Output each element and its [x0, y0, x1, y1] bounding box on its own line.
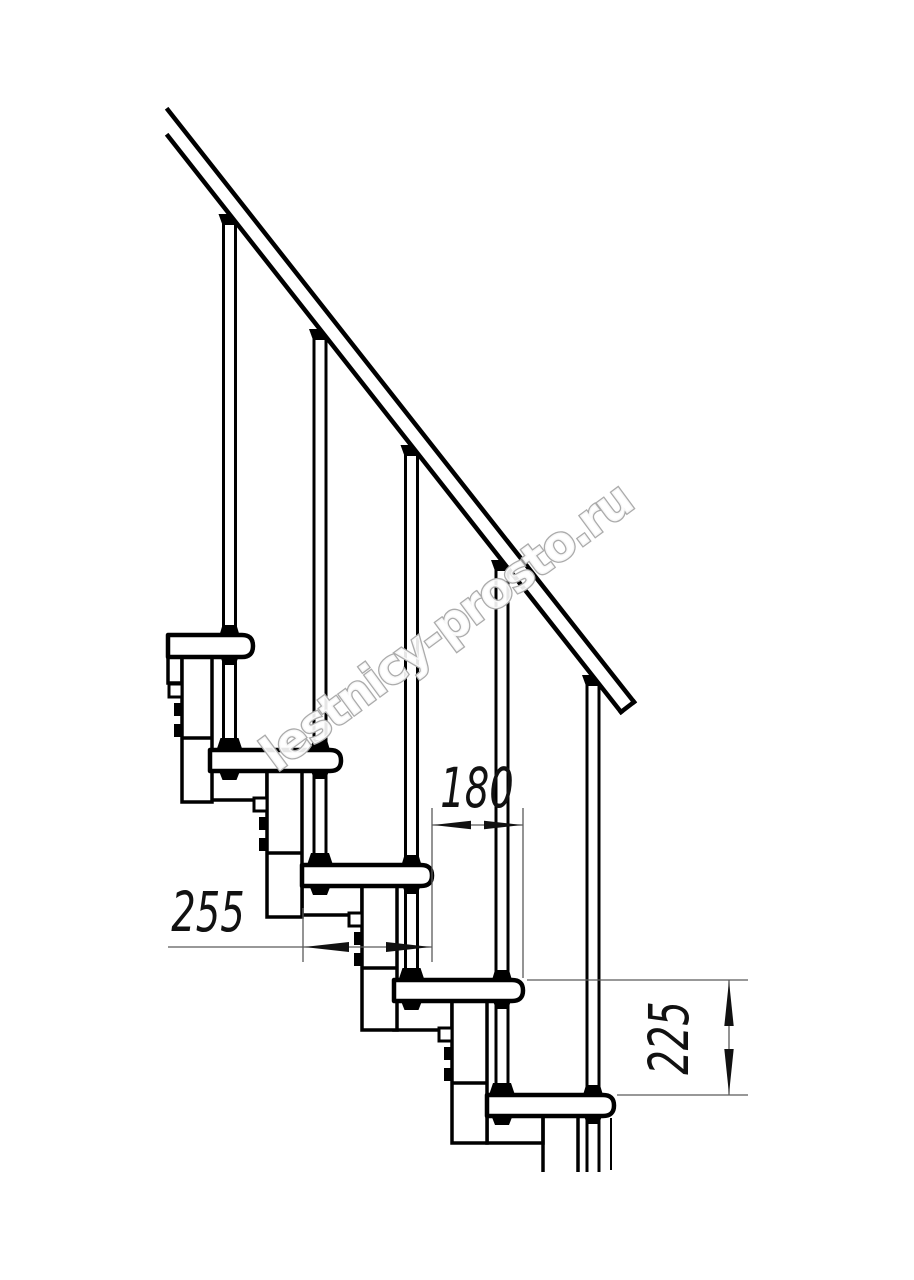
tread: [168, 635, 253, 657]
connector-bolt: [444, 1068, 452, 1081]
staircase-technical-drawing: 180 255 225 lestnicy-prosto.ru: [0, 0, 914, 1280]
bracket: [210, 771, 267, 800]
connector-bolt: [174, 724, 182, 737]
connector-bolt: [354, 953, 362, 966]
stringer-module: [267, 771, 302, 917]
connector-tab-open: [169, 684, 182, 697]
rod-nut: [401, 1001, 422, 1010]
connector-bolt: [259, 817, 267, 830]
tread: [394, 980, 523, 1001]
bracket: [168, 657, 182, 683]
dim-text-riser-height: 225: [638, 1001, 702, 1074]
connector-bolt: [174, 703, 182, 716]
rod-nut: [492, 1116, 513, 1125]
connector-bolt: [354, 932, 362, 945]
tread: [487, 1095, 614, 1116]
dim-arrow-icon: [724, 981, 733, 1026]
handrail-top-edge: [168, 110, 634, 702]
tread-collar: [402, 855, 422, 865]
dim-arrow-icon: [433, 821, 471, 830]
tread-collar: [583, 1085, 603, 1095]
under-tread-collar: [403, 886, 421, 894]
dim-arrow-icon: [386, 942, 431, 952]
connector-tab-open: [439, 1028, 452, 1041]
connector-tab-open: [254, 798, 267, 811]
dim-arrow-icon: [484, 821, 522, 830]
dim-text-step-run: 180: [440, 757, 513, 821]
under-tread-collar: [311, 771, 329, 779]
rod-foot-mount: [217, 738, 243, 750]
under-tread-collar: [221, 657, 239, 665]
rod-foot-mount: [307, 853, 333, 865]
rod-foot-mount: [489, 1083, 515, 1095]
rod-nut: [219, 771, 240, 780]
watermark-text: lestnicy-prosto.ru: [250, 472, 642, 783]
stringer-module: [452, 1001, 487, 1143]
connector-bolt: [444, 1047, 452, 1060]
tread: [302, 865, 432, 886]
handrail: [168, 110, 634, 712]
tread-collar: [220, 625, 240, 635]
rod-nut: [310, 886, 331, 895]
under-tread-collar: [584, 1116, 602, 1124]
dim-text-tread-depth: 255: [171, 881, 244, 945]
rod-foot-mount: [399, 968, 425, 980]
stringer-module: [362, 886, 397, 1030]
dim-arrow-icon: [304, 942, 349, 952]
dim-arrow-icon: [724, 1049, 733, 1094]
stringer-module: [182, 657, 212, 802]
bracket: [302, 886, 362, 915]
connector-tab-open: [349, 913, 362, 926]
connector-bolt: [259, 838, 267, 851]
drawing-canvas: 180 255 225 lestnicy-prosto.ru: [0, 0, 914, 1280]
under-tread-collar: [493, 1001, 511, 1009]
tread-collar: [492, 970, 512, 980]
